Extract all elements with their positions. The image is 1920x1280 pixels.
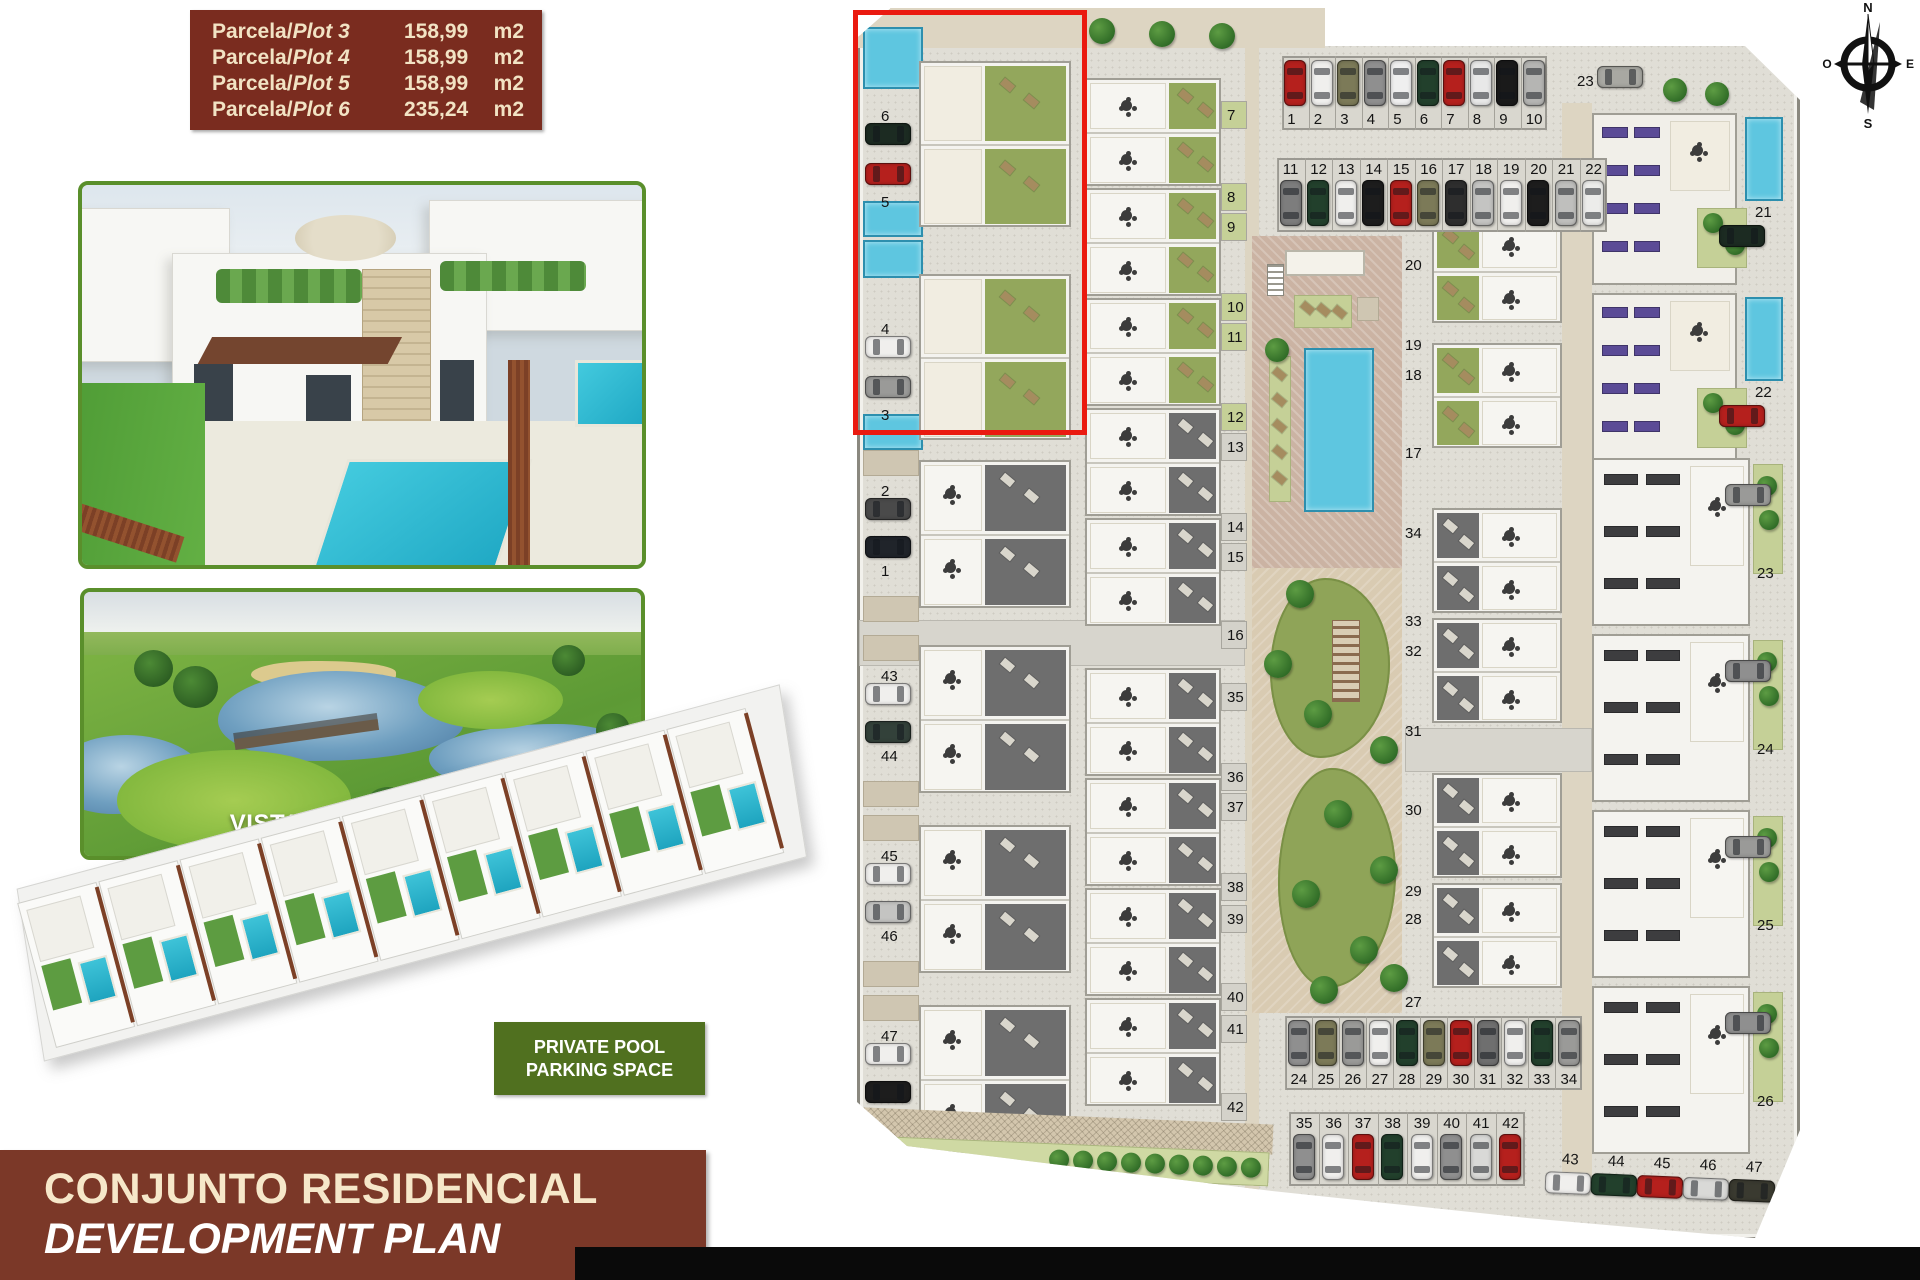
car-icon — [1682, 1177, 1729, 1201]
car-window — [1310, 188, 1326, 195]
table-icon — [1504, 795, 1515, 806]
table-icon — [1504, 640, 1515, 651]
table-icon — [1121, 964, 1132, 975]
garden-terrace — [985, 650, 1066, 716]
car-icon — [865, 863, 911, 885]
car-window — [1446, 68, 1462, 75]
car-window — [1599, 1176, 1607, 1192]
car-window — [1480, 1028, 1496, 1035]
car-icon — [1582, 180, 1604, 226]
table-icon — [1121, 264, 1132, 275]
solar-panel — [1634, 307, 1660, 318]
car-window — [873, 866, 880, 882]
solar-panel — [1604, 474, 1638, 485]
solar-panel — [1646, 526, 1680, 537]
tree-icon — [1121, 1152, 1142, 1173]
solar-panel — [1604, 702, 1638, 713]
car-window — [1345, 1028, 1361, 1035]
plot-number: 6 — [1420, 112, 1428, 127]
car-window — [1283, 212, 1299, 219]
villa-block — [1085, 778, 1221, 886]
garden-terrace — [985, 830, 1066, 896]
driveway-pad — [863, 815, 919, 841]
roof-terrace — [1670, 301, 1730, 371]
plot-number: 24 — [1757, 742, 1774, 757]
villa-unit — [1087, 242, 1219, 296]
solar-panel — [1604, 1106, 1638, 1117]
garden-terrace — [1437, 778, 1479, 823]
roof-terrace — [1482, 888, 1557, 933]
garden-terrace — [985, 904, 1066, 970]
table-icon — [1692, 325, 1703, 336]
solar-panel — [1602, 383, 1628, 394]
plot-number: 7 — [1446, 112, 1454, 127]
car-window — [897, 904, 904, 920]
car-window — [1384, 1142, 1400, 1149]
garden-terrace — [1437, 676, 1479, 721]
solar-panel — [1604, 826, 1638, 837]
bottom-black-strip — [575, 1247, 1920, 1280]
roof-terrace — [1690, 818, 1744, 918]
right-street — [1405, 728, 1592, 772]
plot-number: 29 — [1405, 884, 1422, 899]
plot-number: 8 — [1227, 190, 1235, 205]
garden-terrace — [1169, 837, 1216, 883]
plot-number: 32 — [1507, 1072, 1524, 1087]
car-window — [1283, 188, 1299, 195]
roof-terrace — [1482, 566, 1557, 611]
car-icon — [1545, 1171, 1592, 1195]
compass-east: E — [1906, 57, 1914, 71]
tree-icon — [1370, 736, 1398, 764]
car-icon — [1362, 180, 1384, 226]
solar-panel — [1604, 1002, 1638, 1013]
villa-unit — [1087, 520, 1219, 572]
table-icon — [1121, 540, 1132, 551]
car-window — [873, 1084, 880, 1100]
car-icon — [1523, 60, 1545, 106]
car-window — [1751, 408, 1758, 424]
solar-panel — [1602, 241, 1628, 252]
highlighted-plots-outline — [853, 10, 1087, 435]
car-icon — [1527, 180, 1549, 226]
car-window — [1448, 188, 1464, 195]
villa-unit — [1087, 462, 1219, 516]
tree-icon — [1380, 964, 1408, 992]
car-window — [1372, 1028, 1388, 1035]
villa-unit — [1087, 780, 1219, 832]
plot-number: 43 — [881, 669, 898, 684]
garden-terrace — [985, 539, 1066, 605]
aerial-row-render — [38, 780, 848, 1160]
car-icon — [1293, 1134, 1315, 1180]
car-window — [897, 1046, 904, 1062]
plot-number: 27 — [1372, 1072, 1389, 1087]
plot-number: 42 — [1227, 1100, 1244, 1115]
table-icon — [1121, 854, 1132, 865]
car-window — [1499, 68, 1515, 75]
car-window — [1338, 188, 1354, 195]
car-window — [1507, 1028, 1523, 1035]
plot-number: 44 — [881, 749, 898, 764]
plot-number: 35 — [1296, 1116, 1313, 1131]
plot-number: 19 — [1503, 162, 1520, 177]
solar-panel — [1634, 165, 1660, 176]
tree-icon — [1145, 1153, 1166, 1174]
solar-panel — [1604, 878, 1638, 889]
table-icon — [1121, 1074, 1132, 1085]
plot-number: 17 — [1405, 446, 1422, 461]
compass-south: S — [1864, 116, 1873, 130]
plot-number: 42 — [1502, 1116, 1519, 1131]
table-icon — [945, 488, 956, 499]
car-window — [1502, 1142, 1518, 1149]
community-garden — [1252, 568, 1402, 1013]
car-icon — [1311, 60, 1333, 106]
villa-unit — [1434, 510, 1560, 561]
plot-number: 33 — [1405, 614, 1422, 629]
car-icon — [865, 536, 911, 558]
car-window — [873, 501, 880, 517]
car-icon — [1590, 1173, 1637, 1197]
plot-number: 25 — [1318, 1072, 1335, 1087]
villa-unit — [1087, 890, 1219, 942]
table-icon — [1710, 676, 1721, 687]
villa-unit — [1434, 271, 1560, 324]
car-window — [1757, 1015, 1764, 1031]
car-window — [1645, 1178, 1653, 1194]
table-icon — [945, 747, 956, 758]
villa-unit — [1434, 885, 1560, 936]
table-icon — [945, 853, 956, 864]
plot-number: 12 — [1227, 410, 1244, 425]
car-window — [1669, 1179, 1677, 1195]
car-icon — [1725, 484, 1771, 506]
car-window — [1534, 1028, 1550, 1035]
car-icon — [1390, 180, 1412, 226]
plot-label: Parcela/Plot 5 — [212, 72, 350, 96]
title-spanish: CONJUNTO RESIDENCIAL — [44, 1164, 706, 1214]
car-icon — [865, 1081, 911, 1103]
car-icon — [1342, 1020, 1364, 1066]
table-icon — [1121, 690, 1132, 701]
garden-terrace — [1169, 783, 1216, 829]
plot-number: 38 — [1227, 880, 1244, 895]
garden-terrace — [1169, 247, 1216, 293]
villa-block — [1085, 888, 1221, 996]
table-icon — [1710, 852, 1721, 863]
car-window — [1393, 188, 1409, 195]
compass-north: N — [1863, 2, 1872, 15]
plot-number: 23 — [1577, 74, 1594, 89]
plot-number: 23 — [1757, 566, 1774, 581]
car-window — [1757, 663, 1764, 679]
car-window — [1727, 228, 1734, 244]
villa-block — [1085, 408, 1221, 516]
car-icon — [1470, 60, 1492, 106]
plot-number: 21 — [1755, 205, 1772, 220]
car-window — [1291, 1052, 1307, 1059]
table-icon — [1710, 1028, 1721, 1039]
car-icon — [1531, 1020, 1553, 1066]
solar-panel — [1602, 307, 1628, 318]
plot-number: 47 — [1745, 1159, 1762, 1175]
car-window — [1733, 1015, 1740, 1031]
solar-panel — [1634, 203, 1660, 214]
roof-terrace — [1482, 401, 1557, 446]
plot-number: 28 — [1399, 1072, 1416, 1087]
plot-info-row: Parcela/Plot 6235,24m2 — [212, 98, 524, 122]
plot-number: 20 — [1405, 258, 1422, 273]
plot-number: 21 — [1558, 162, 1575, 177]
solar-panel — [1646, 878, 1680, 889]
table-icon — [1121, 430, 1132, 441]
car-icon — [1307, 180, 1329, 226]
villa-block — [1085, 298, 1221, 406]
tree-icon — [1663, 78, 1687, 102]
car-window — [1751, 228, 1758, 244]
garden-terrace — [1437, 623, 1479, 668]
car-window — [1420, 92, 1436, 99]
car-window — [897, 501, 904, 517]
table-icon — [1121, 320, 1132, 331]
car-window — [1727, 408, 1734, 424]
garden-terrace — [985, 465, 1066, 531]
plot-number: 2 — [881, 484, 889, 499]
car-window — [1446, 92, 1462, 99]
table-icon — [1121, 100, 1132, 111]
car-icon — [1477, 1020, 1499, 1066]
table-icon — [1504, 958, 1515, 969]
solar-panel — [1604, 526, 1638, 537]
villa-unit — [1087, 722, 1219, 776]
feature-private-pool: PRIVATE POOL — [534, 1037, 665, 1057]
garden-terrace — [1169, 523, 1216, 569]
plot-number: 2 — [1314, 112, 1322, 127]
car-window — [873, 904, 880, 920]
car-window — [1365, 212, 1381, 219]
tree-icon — [1240, 1157, 1261, 1178]
plot-number: 13 — [1338, 162, 1355, 177]
car-window — [1287, 68, 1303, 75]
villa-block — [1432, 618, 1562, 723]
car-window — [873, 539, 880, 555]
villa-unit — [921, 647, 1069, 719]
table-icon — [945, 673, 956, 684]
table-icon — [945, 927, 956, 938]
villa-block — [919, 645, 1071, 793]
compass-west: O — [1822, 57, 1831, 71]
roof-terrace — [1670, 121, 1730, 191]
plot-number: 34 — [1561, 1072, 1578, 1087]
plot-number: 13 — [1227, 440, 1244, 455]
plot-number: 5 — [1393, 112, 1401, 127]
tree-icon — [1705, 82, 1729, 106]
driveway-pad — [863, 995, 919, 1021]
car-icon — [1443, 60, 1465, 106]
villa-unit — [1087, 410, 1219, 462]
car-window — [1384, 1166, 1400, 1173]
plot-number: 1 — [1287, 112, 1295, 127]
villa-unit — [1087, 832, 1219, 886]
car-icon — [1450, 1020, 1472, 1066]
solar-panel — [1646, 930, 1680, 941]
plot-number: 31 — [1480, 1072, 1497, 1087]
table-icon — [1121, 1020, 1132, 1031]
pergola — [1285, 250, 1365, 276]
villa-block — [1592, 458, 1750, 626]
garden-terrace — [1437, 401, 1479, 446]
car-icon — [1337, 60, 1359, 106]
villa-block — [1592, 634, 1750, 802]
plot-number: 35 — [1227, 690, 1244, 705]
car-icon — [1725, 1012, 1771, 1034]
solar-panel — [1602, 127, 1628, 138]
car-window — [1473, 1166, 1489, 1173]
villa-block — [919, 825, 1071, 973]
car-window — [1414, 1142, 1430, 1149]
plot-number: 16 — [1420, 162, 1437, 177]
table-icon — [1121, 484, 1132, 495]
car-window — [1296, 1142, 1312, 1149]
roof-terrace — [1690, 994, 1744, 1094]
plot-number: 39 — [1414, 1116, 1431, 1131]
car-icon — [865, 901, 911, 923]
plot-number: 38 — [1384, 1116, 1401, 1131]
plot-label: Parcela/Plot 4 — [212, 46, 350, 70]
table-icon — [1121, 154, 1132, 165]
table-icon — [1504, 848, 1515, 859]
roof-terrace — [1482, 778, 1557, 823]
car-window — [1318, 1052, 1334, 1059]
car-icon — [1445, 180, 1467, 226]
car-window — [1367, 68, 1383, 75]
tree-icon — [1759, 1038, 1779, 1058]
car-icon — [1597, 66, 1643, 88]
driveway-pad — [863, 781, 919, 807]
garden-terrace — [1437, 566, 1479, 611]
car-window — [897, 866, 904, 882]
car-window — [1502, 1166, 1518, 1173]
garden-terrace — [985, 1010, 1066, 1076]
car-window — [1561, 1052, 1577, 1059]
solar-panel — [1604, 1054, 1638, 1065]
plot-number: 15 — [1393, 162, 1410, 177]
car-icon — [1728, 1179, 1775, 1203]
solar-panel — [1604, 930, 1638, 941]
car-window — [1503, 188, 1519, 195]
garden-terrace — [1169, 893, 1216, 939]
tree-icon — [1324, 800, 1352, 828]
roof-terrace — [1482, 941, 1557, 986]
stairs — [1267, 264, 1284, 296]
plot-number: 27 — [1405, 995, 1422, 1010]
plot-number: 24 — [1291, 1072, 1308, 1087]
private-pool — [1745, 297, 1783, 381]
car-icon — [1390, 60, 1412, 106]
villa-unit — [1087, 1000, 1219, 1052]
villa-unit — [1087, 352, 1219, 406]
tree-icon — [1304, 700, 1332, 728]
car-icon — [1364, 60, 1386, 106]
plot-number: 1 — [881, 564, 889, 579]
plot-number: 3 — [1340, 112, 1348, 127]
roof-terrace — [1482, 623, 1557, 668]
plot-number: 44 — [1608, 1154, 1625, 1170]
plot-number: 14 — [1365, 162, 1382, 177]
car-window — [873, 686, 880, 702]
plot-number: 39 — [1227, 912, 1244, 927]
car-window — [1355, 1142, 1371, 1149]
villa-unit — [921, 462, 1069, 534]
car-icon — [1417, 60, 1439, 106]
car-window — [1736, 1182, 1744, 1198]
car-window — [1558, 212, 1574, 219]
car-window — [897, 686, 904, 702]
car-window — [1296, 1166, 1312, 1173]
development-plan-page: Parcela/Plot 3158,99m2Parcela/Plot 4158,… — [0, 0, 1920, 1280]
tree-icon — [1292, 880, 1320, 908]
tree-icon — [1370, 856, 1398, 884]
car-icon — [1470, 1134, 1492, 1180]
car-window — [873, 724, 880, 740]
plot-number: 14 — [1227, 520, 1244, 535]
tree-icon — [1097, 1151, 1118, 1172]
villa-block — [1085, 188, 1221, 296]
table-icon — [1710, 500, 1721, 511]
villa-block — [1592, 810, 1750, 978]
villa-unit — [921, 899, 1069, 973]
tree-icon — [1759, 510, 1779, 530]
car-icon — [1417, 180, 1439, 226]
car-icon — [865, 721, 911, 743]
villa-block — [1085, 668, 1221, 776]
car-window — [1453, 1052, 1469, 1059]
plot-number: 36 — [1227, 770, 1244, 785]
villa-unit — [921, 1007, 1069, 1079]
garden-terrace — [985, 724, 1066, 790]
car-icon — [1719, 405, 1765, 427]
tree-icon — [1759, 686, 1779, 706]
plot-number: 9 — [1227, 220, 1235, 235]
villa-block — [1432, 883, 1562, 988]
table-icon — [1121, 800, 1132, 811]
plot-number: 11 — [1227, 330, 1243, 345]
solar-panel — [1634, 241, 1660, 252]
compass-rose: N S E O — [1822, 2, 1914, 130]
car-window — [1325, 1142, 1341, 1149]
table-icon — [1504, 418, 1515, 429]
plot-number: 11 — [1283, 162, 1299, 177]
plot-number: 20 — [1530, 162, 1547, 177]
car-icon — [1440, 1134, 1462, 1180]
car-window — [1338, 212, 1354, 219]
car-window — [1530, 188, 1546, 195]
villa-unit — [1434, 775, 1560, 826]
villa-block — [1432, 343, 1562, 448]
car-icon — [865, 498, 911, 520]
car-window — [1453, 1028, 1469, 1035]
solar-panel — [1634, 383, 1660, 394]
plot-area: 158,99m2 — [404, 46, 524, 70]
tree-icon — [1073, 1150, 1094, 1171]
plot-number: 40 — [1227, 990, 1244, 1005]
roof-terrace — [1482, 348, 1557, 393]
plot-number: 41 — [1473, 1116, 1490, 1131]
plot-number: 46 — [1700, 1158, 1717, 1174]
plot-number: 28 — [1405, 912, 1422, 927]
plot-number: 8 — [1473, 112, 1481, 127]
